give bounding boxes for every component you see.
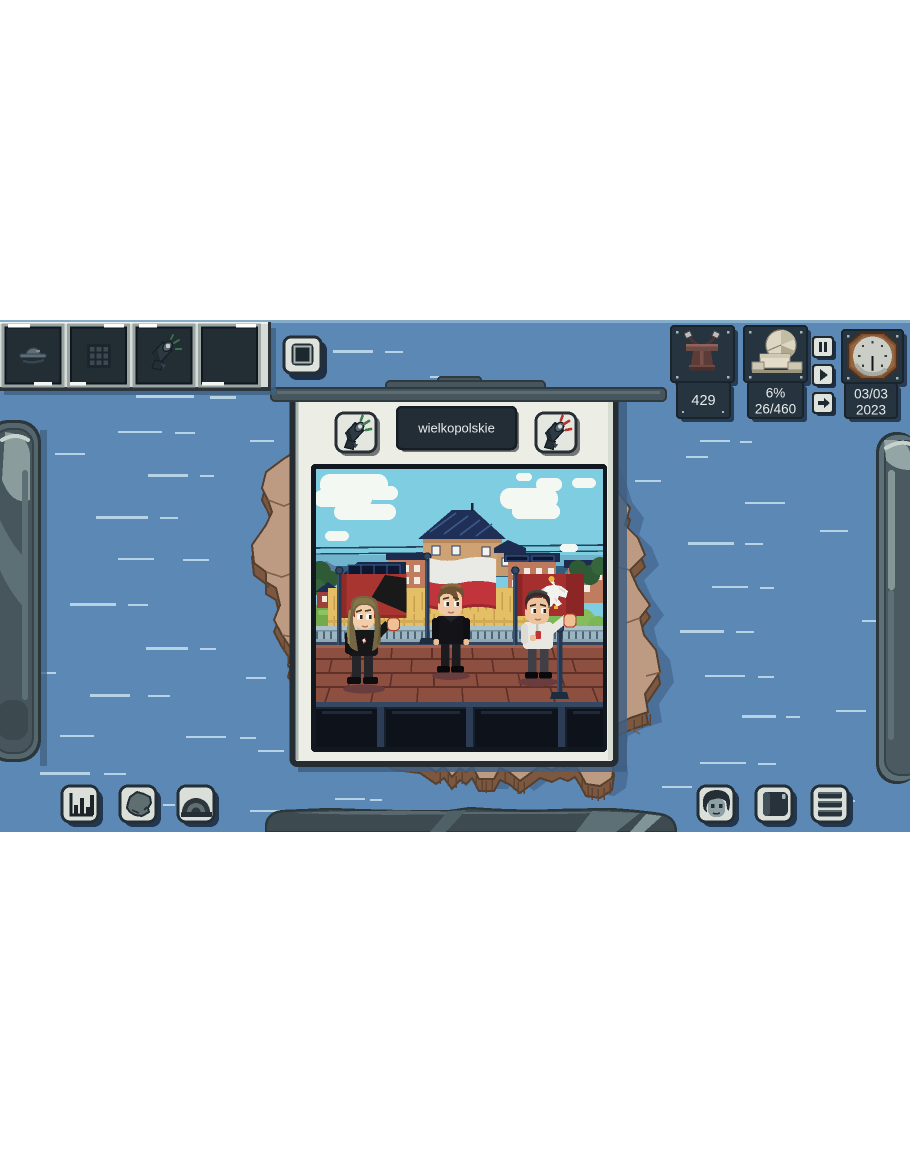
svg-text:6%: 6% [766,386,786,401]
svg-text:wielkopolskie: wielkopolskie [417,421,495,436]
svg-text:2023: 2023 [856,403,886,418]
svg-text:03/03: 03/03 [854,387,888,402]
svg-text:26/460: 26/460 [755,402,796,417]
svg-text:429: 429 [691,393,715,409]
